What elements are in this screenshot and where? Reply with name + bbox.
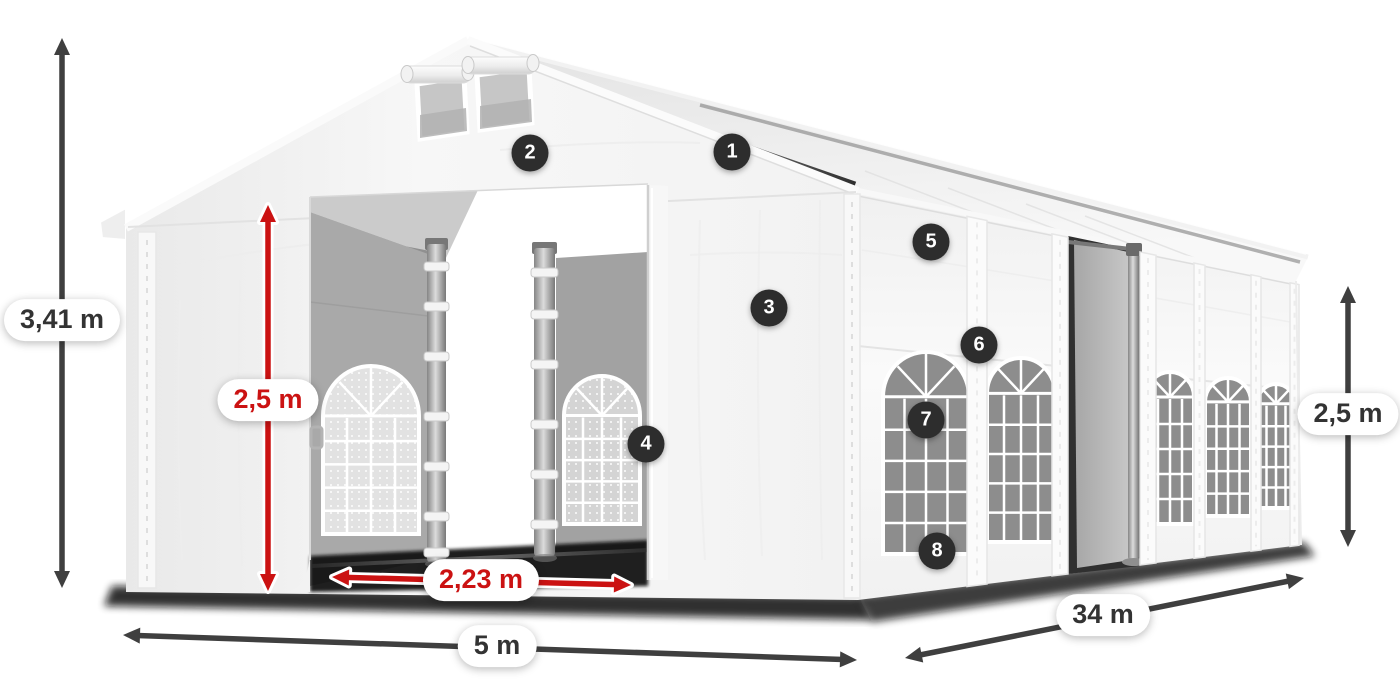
wall-strap: [1140, 252, 1156, 565]
wall-strap: [967, 216, 987, 586]
marker-badge-5: 5: [913, 224, 950, 261]
entrance-pole-right: [532, 242, 557, 562]
marker-badge-7: 7: [908, 402, 945, 439]
marker-badge-6: 6: [961, 327, 998, 364]
pole-clip: [531, 310, 558, 319]
arched-window: [1205, 378, 1251, 516]
pole-clip: [424, 462, 449, 471]
dim-label-width: 5 m: [458, 625, 537, 667]
pole-clip: [424, 548, 449, 557]
dim-label-inner-height: 2,5 m: [217, 379, 318, 421]
marker-badge-2: 2: [512, 135, 549, 172]
arched-window: [883, 352, 969, 554]
dim-label-entrance-width: 2,23 m: [423, 559, 539, 601]
pole-clip: [531, 268, 558, 277]
pole-clip: [424, 412, 449, 421]
side-door-panel: [1074, 240, 1131, 568]
vent-rolled-cover: [464, 57, 536, 74]
wall-strap: [1251, 275, 1261, 551]
side-door-pole: [1128, 249, 1139, 560]
tent-dimensions-diagram: 1 2 3 4 5 6 7 8 3,41 m 2,5 m 2,23 m 5 m …: [0, 0, 1400, 700]
pole-clip: [531, 360, 558, 369]
pole-clip: [424, 512, 449, 521]
pole-clip: [531, 520, 558, 529]
side-entrance-open: [1068, 236, 1146, 574]
arched-window: [323, 366, 419, 534]
pole-clip: [424, 262, 449, 271]
arched-window: [987, 358, 1055, 542]
dim-label-length: 34 m: [1056, 594, 1150, 636]
front-entrance-opening: [284, 184, 668, 592]
pole-clip: [424, 302, 449, 311]
marker-badge-4: 4: [628, 426, 665, 463]
dim-label-total-height: 3,41 m: [4, 299, 120, 341]
marker-badge-1: 1: [714, 134, 751, 171]
marker-badge-3: 3: [751, 290, 788, 327]
marker-badge-8: 8: [919, 533, 956, 570]
dim-label-side-height: 2,5 m: [1297, 393, 1398, 435]
wall-strap: [1052, 234, 1068, 576]
pole-clip: [531, 470, 558, 479]
wall-strap: [1194, 263, 1205, 558]
pole-clip: [531, 420, 558, 429]
pole-clip: [424, 352, 449, 361]
tent-illustration: [0, 0, 1400, 700]
